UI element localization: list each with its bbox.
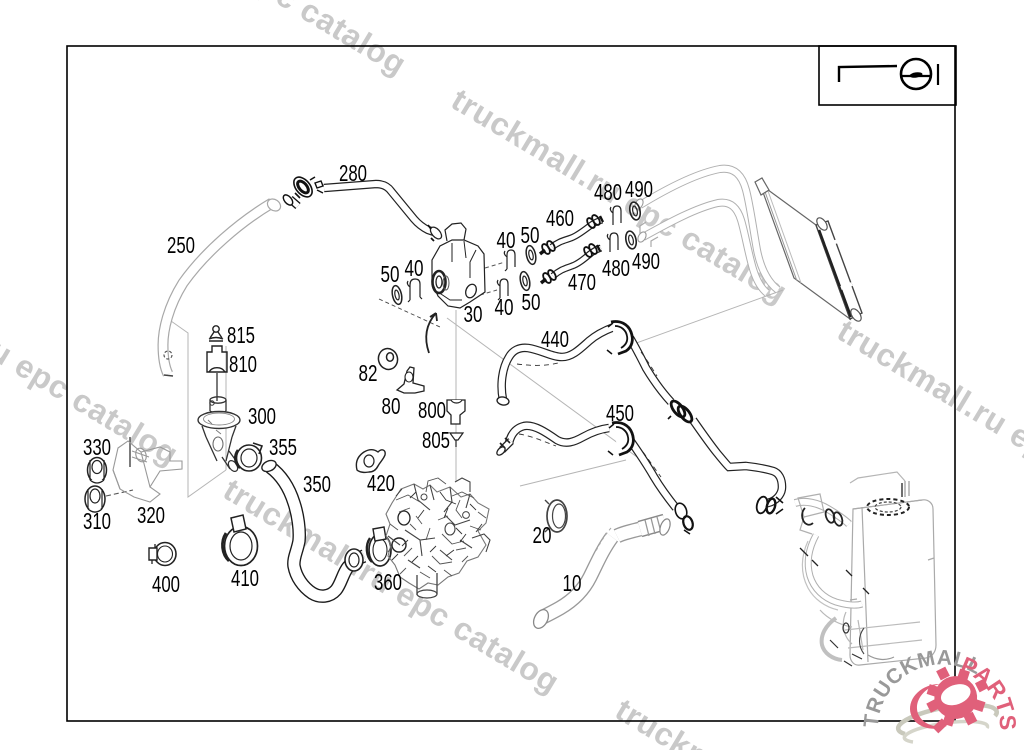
svg-text:810: 810 [229, 351, 257, 377]
svg-text:40: 40 [495, 294, 514, 320]
svg-text:805: 805 [422, 427, 450, 453]
svg-text:490: 490 [625, 176, 653, 202]
svg-text:400: 400 [152, 571, 180, 597]
svg-text:355: 355 [269, 434, 297, 460]
svg-text:80: 80 [382, 393, 401, 419]
svg-text:30: 30 [464, 301, 483, 327]
svg-text:450: 450 [606, 400, 634, 426]
svg-text:50: 50 [521, 222, 540, 248]
svg-text:490: 490 [632, 248, 660, 274]
svg-text:250: 250 [167, 232, 195, 258]
svg-text:330: 330 [83, 434, 111, 460]
svg-text:300: 300 [248, 403, 276, 429]
svg-text:40: 40 [497, 227, 516, 253]
svg-text:20: 20 [533, 522, 552, 548]
svg-text:440: 440 [541, 326, 569, 352]
svg-text:410: 410 [231, 565, 259, 591]
svg-text:280: 280 [339, 160, 367, 186]
svg-text:40: 40 [405, 255, 424, 281]
svg-text:10: 10 [563, 570, 582, 596]
svg-text:50: 50 [522, 289, 541, 315]
svg-text:310: 310 [83, 508, 111, 534]
svg-text:320: 320 [137, 502, 165, 528]
svg-text:480: 480 [602, 255, 630, 281]
svg-text:470: 470 [568, 269, 596, 295]
svg-text:815: 815 [227, 322, 255, 348]
svg-text:420: 420 [367, 470, 395, 496]
svg-text:460: 460 [546, 205, 574, 231]
svg-text:82: 82 [359, 360, 378, 386]
svg-text:480: 480 [594, 179, 622, 205]
svg-text:800: 800 [418, 397, 446, 423]
svg-text:360: 360 [374, 569, 402, 595]
svg-text:350: 350 [303, 471, 331, 497]
svg-text:50: 50 [381, 261, 400, 287]
